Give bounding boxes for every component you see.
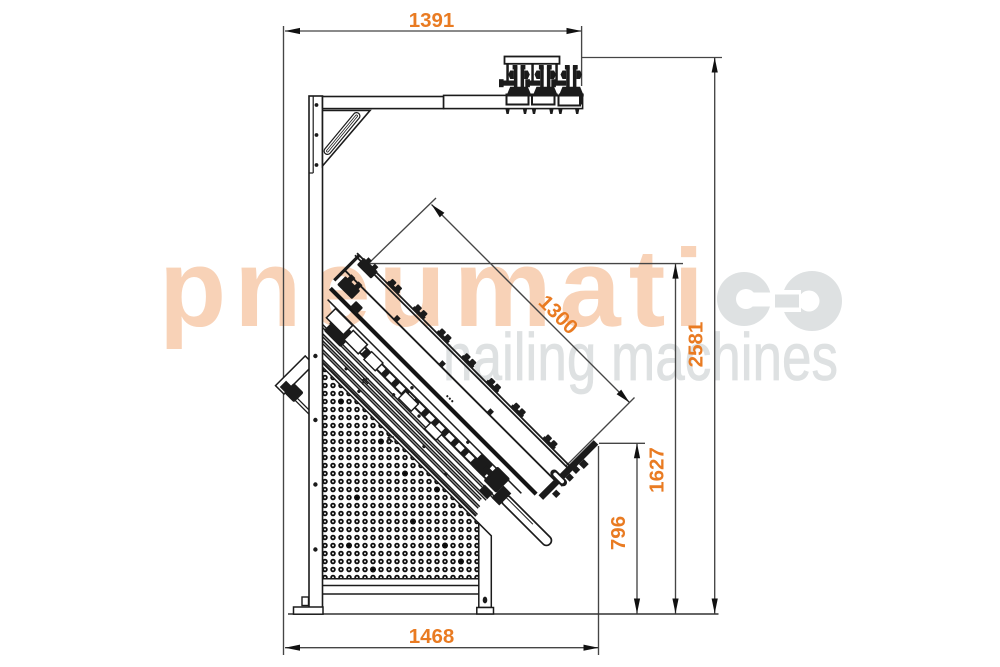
- svg-text:1468: 1468: [409, 625, 455, 648]
- svg-text:2581: 2581: [685, 322, 708, 368]
- svg-text:796: 796: [607, 516, 630, 550]
- svg-text:1391: 1391: [409, 9, 455, 32]
- svg-text:nailing machines: nailing machines: [443, 320, 838, 395]
- svg-text:1627: 1627: [646, 447, 669, 493]
